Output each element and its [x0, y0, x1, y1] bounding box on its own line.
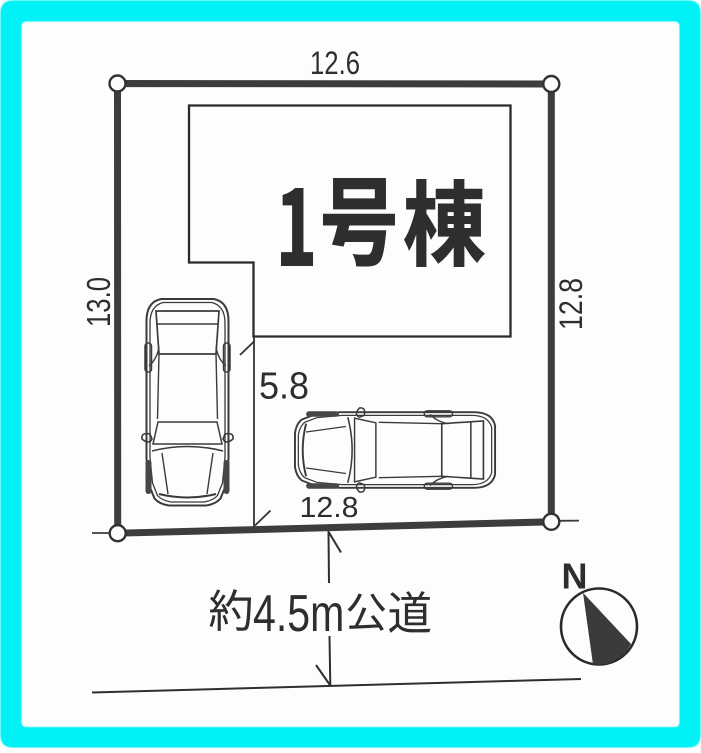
svg-text:12.6: 12.6: [310, 45, 360, 81]
svg-text:4.5m: 4.5m: [253, 584, 344, 642]
svg-text:5.8: 5.8: [259, 366, 309, 408]
svg-text:13.0: 13.0: [80, 277, 117, 327]
svg-text:12.8: 12.8: [300, 492, 359, 524]
svg-text:12.8: 12.8: [553, 278, 589, 330]
